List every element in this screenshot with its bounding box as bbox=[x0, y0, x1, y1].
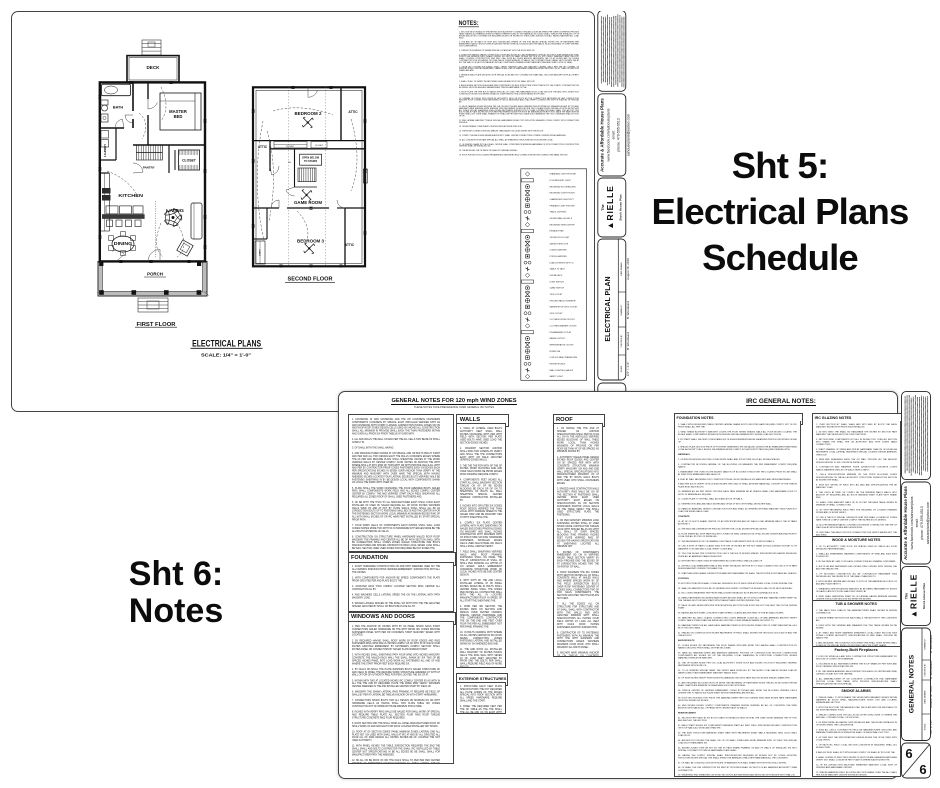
svg-text:LINEN: LINEN bbox=[260, 249, 262, 256]
svg-text:SCALE: 1/4" = 1'-0": SCALE: 1/4" = 1'-0" bbox=[201, 353, 251, 359]
svg-text:DRAWN BY: DRAWN BY bbox=[620, 304, 623, 315]
svg-text:VANITY LIGHT: VANITY LIGHT bbox=[550, 375, 564, 378]
svg-text:CLOSET: CLOSET bbox=[315, 145, 324, 147]
svg-text:RECESSED VENT/LIGHT/F: RECESSED VENT/LIGHT/F bbox=[550, 224, 576, 226]
svg-text:BED: BED bbox=[174, 114, 183, 119]
svg-text:▲RIELLE: ▲RIELLE bbox=[605, 185, 615, 229]
svg-text:TO STAIRS: TO STAIRS bbox=[304, 160, 317, 163]
svg-text:PORCH LANTERN: PORCH LANTERN bbox=[550, 255, 568, 258]
svg-text:LAUNDRY: LAUNDRY bbox=[103, 144, 107, 157]
svg-text:ELECTRICAL PLANS: ELECTRICAL PLANS bbox=[192, 339, 261, 349]
svg-text:3/8" = 1'-0": 3/8" = 1'-0" bbox=[930, 720, 933, 735]
svg-text:DUAL EXTERIOR SPOT LI: DUAL EXTERIOR SPOT LI bbox=[550, 261, 575, 264]
svg-text:B. Woodward: B. Woodward bbox=[930, 635, 933, 653]
svg-text:BEDROOM 3: BEDROOM 3 bbox=[297, 239, 325, 244]
svg-text:GENERAL NOTES: GENERAL NOTES bbox=[909, 654, 916, 713]
svg-text:www.facebook.com/aahouseplans: www.facebook.com/aahouseplans bbox=[606, 108, 610, 161]
svg-text:CHECKED BY: CHECKED BY bbox=[925, 663, 927, 677]
svg-text:KITCHEN: KITCHEN bbox=[118, 193, 143, 198]
svg-text:DINING: DINING bbox=[114, 241, 133, 246]
svg-text:Accurate & Affordable House Pl: Accurate & Affordable House Plans bbox=[599, 98, 604, 172]
svg-text:WATERPROOF GFCI OUTLET: WATERPROOF GFCI OUTLET bbox=[550, 306, 579, 309]
svg-text:DECK: DECK bbox=[146, 65, 160, 70]
svg-text:PHONE JACK: PHONE JACK bbox=[550, 274, 563, 277]
svg-text:1/4" = 1'-0": 1/4" = 1'-0" bbox=[626, 362, 630, 377]
svg-text:SCALE: SCALE bbox=[924, 723, 927, 730]
svg-text:B. Woodward: B. Woodward bbox=[626, 332, 630, 350]
svg-text:ELECTRICAL PLAN: ELECTRICAL PLAN bbox=[605, 276, 612, 341]
svg-text:PORCH: PORCH bbox=[147, 272, 163, 277]
svg-text:STANDARD LIGHT FIXTURE: STANDARD LIGHT FIXTURE bbox=[550, 173, 577, 176]
svg-text:CLOTHES WASHER OUTLET: CLOTHES WASHER OUTLET bbox=[550, 325, 578, 328]
svg-text:3-WAY SWITCH: 3-WAY SWITCH bbox=[550, 287, 565, 290]
svg-text:TRACK LIGHTING: TRACK LIGHTING bbox=[550, 211, 567, 214]
svg-text:Stock House Plan: Stock House Plan bbox=[922, 583, 926, 609]
svg-text:NOTES:: NOTES: bbox=[459, 20, 479, 27]
svg-text:SMOKE DETECTOR: SMOKE DETECTOR bbox=[550, 243, 569, 245]
svg-text:RECESSED FLUORESCENT: RECESSED FLUORESCENT bbox=[550, 186, 577, 188]
svg-text:CLOTHES DRYER OUTLET: CLOTHES DRYER OUTLET bbox=[550, 319, 576, 321]
svg-text:EXHAUST FAN: EXHAUST FAN bbox=[550, 230, 564, 233]
svg-text:B. Woodward: B. Woodward bbox=[930, 661, 933, 679]
svg-text:DRAWN BY: DRAWN BY bbox=[924, 638, 927, 649]
svg-text:WALL LIGHTING (HALF-R: WALL LIGHTING (HALF-R bbox=[550, 369, 574, 372]
svg-text:220V OUTLET: 220V OUTLET bbox=[550, 313, 564, 315]
svg-text:FLUORESCENT LIGHT: FLUORESCENT LIGHT bbox=[550, 180, 572, 182]
svg-text:REFRIGERATOR OUTLET: REFRIGERATOR OUTLET bbox=[550, 344, 575, 347]
svg-text:GAME ROOM: GAME ROOM bbox=[294, 200, 322, 205]
svg-text:ATTIC: ATTIC bbox=[345, 243, 355, 247]
svg-text:RECESSED LIGHT FIXTUR: RECESSED LIGHT FIXTUR bbox=[550, 193, 576, 195]
svg-text:www.facebook.com/aahouseplans: www.facebook.com/aahouseplans bbox=[910, 496, 914, 549]
svg-text:BATH: BATH bbox=[113, 106, 124, 110]
svg-text:BEDROOM 2: BEDROOM 2 bbox=[295, 111, 323, 116]
svg-text:SECOND FLOOR: SECOND FLOOR bbox=[288, 277, 333, 283]
svg-text:110V OUTLET: 110V OUTLET bbox=[550, 294, 564, 296]
svg-text:CLOSET: CLOSET bbox=[182, 159, 197, 163]
svg-text:PENDANT LIGHT FIXTURE: PENDANT LIGHT FIXTURE bbox=[550, 204, 576, 207]
svg-text:EXTERIOR JACK: EXTERIOR JACK bbox=[550, 363, 567, 366]
svg-text:PANTRY: PANTRY bbox=[143, 166, 155, 170]
svg-text:CHANDELIER LIGHT FIXT: CHANDELIER LIGHT FIXT bbox=[550, 198, 575, 201]
svg-text:ATTIC: ATTIC bbox=[258, 145, 268, 149]
svg-text:ATTIC: ATTIC bbox=[348, 110, 358, 114]
svg-text:SCALE: SCALE bbox=[620, 365, 623, 372]
svg-text:6: 6 bbox=[919, 762, 926, 777]
svg-text:▲RIELLE: ▲RIELLE bbox=[909, 574, 919, 618]
svg-text:CHECKED BY: CHECKED BY bbox=[621, 334, 623, 348]
svg-text:CEILING PULL LIGHT: CEILING PULL LIGHT bbox=[550, 237, 571, 239]
svg-text:phone: 479-595-0513: phone: 479-595-0513 bbox=[920, 506, 924, 540]
svg-text:B. Woodward: B. Woodward bbox=[626, 301, 630, 319]
svg-text:email:: email: bbox=[915, 519, 919, 528]
svg-text:LOW-VOLTAGE TRANSFORM: LOW-VOLTAGE TRANSFORM bbox=[550, 356, 578, 359]
svg-text:CLOSET: CLOSET bbox=[286, 146, 295, 148]
svg-text:RANGE OUTLET: RANGE OUTLET bbox=[550, 337, 566, 340]
svg-text:6: 6 bbox=[905, 746, 912, 761]
svg-text:DATE DRAWN: DATE DRAWN bbox=[924, 690, 927, 704]
svg-text:Accurate & Affordable House Pl: Accurate & Affordable House Plans bbox=[903, 486, 908, 560]
svg-text:COACH LANTERN: COACH LANTERN bbox=[550, 249, 568, 252]
svg-text:DISHWASHER OUTLET: DISHWASHER OUTLET bbox=[550, 331, 573, 334]
svg-text:CABLE TV JACK: CABLE TV JACK bbox=[550, 268, 566, 271]
svg-text:GROUND FAULT INTERRUP: GROUND FAULT INTERRUP bbox=[550, 299, 577, 302]
svg-text:aahouseplans@yahoo.com: aahouseplans@yahoo.com bbox=[926, 502, 930, 545]
svg-text:August 18, 2010: August 18, 2010 bbox=[930, 686, 933, 708]
svg-text:email:: email: bbox=[611, 131, 615, 140]
svg-text:LIGHT SWITCH: LIGHT SWITCH bbox=[550, 281, 565, 283]
svg-text:CEILING FAN w/LIGHT K: CEILING FAN w/LIGHT K bbox=[550, 217, 573, 220]
svg-text:INTERCOM: INTERCOM bbox=[550, 351, 561, 353]
